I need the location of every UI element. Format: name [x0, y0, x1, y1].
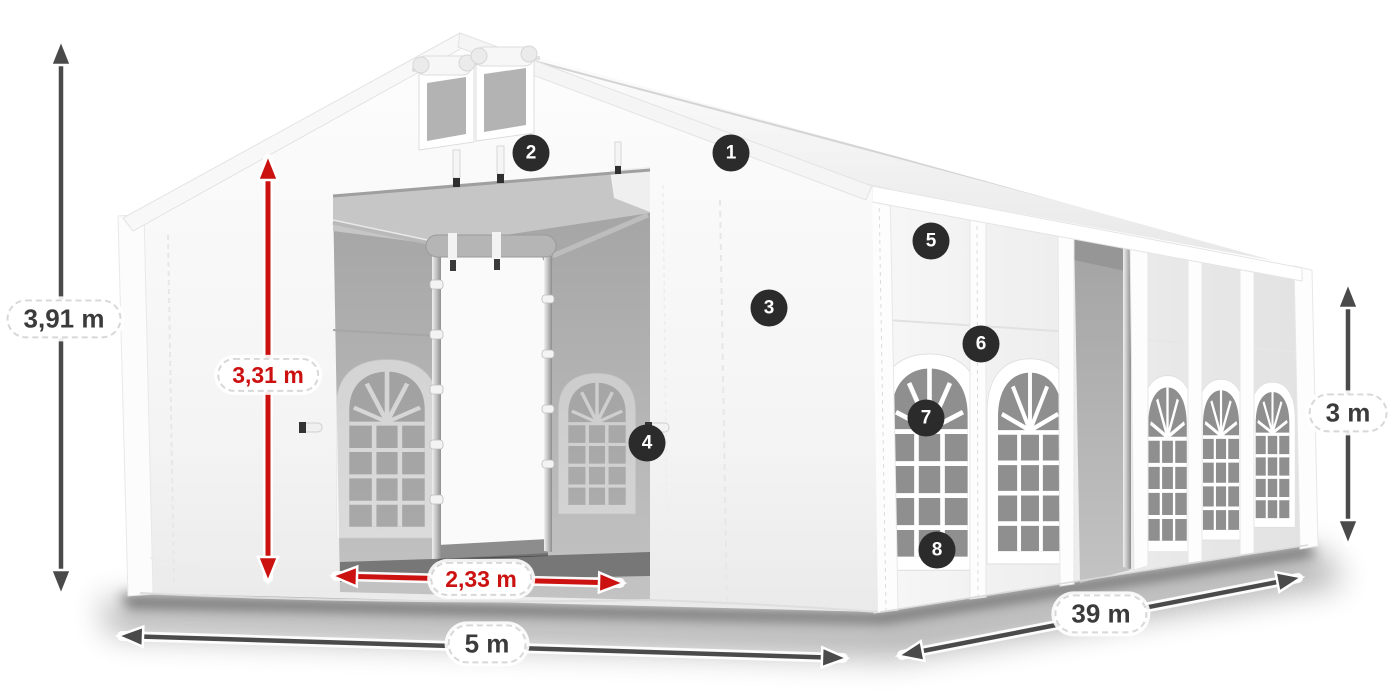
- dimension-label-door-height: 3,31 m: [217, 358, 319, 392]
- side-passage-opening: [1074, 226, 1131, 583]
- side-window-4: [1197, 379, 1245, 540]
- interior-window-right: [559, 373, 636, 513]
- callout-badge-3[interactable]: 3: [751, 290, 788, 327]
- callout-badge-6[interactable]: 6: [963, 326, 1000, 363]
- callout-badge-2[interactable]: 2: [513, 135, 550, 172]
- gable-window-right: [471, 46, 537, 141]
- dimension-label-overall-height: 3,91 m: [7, 299, 122, 338]
- dimension-label-side-length: 39 m: [1054, 594, 1147, 633]
- front-door-opening: [333, 167, 650, 600]
- callout-badge-5[interactable]: 5: [913, 223, 950, 260]
- dimension-label-door-width: 2,33 m: [430, 562, 532, 596]
- rolled-door: [426, 235, 556, 257]
- left-door-handle: [299, 422, 322, 433]
- callout-badge-4[interactable]: 4: [629, 425, 666, 462]
- tent-illustration: [0, 0, 1400, 700]
- callout-badge-8[interactable]: 8: [919, 532, 956, 569]
- side-window-3: [1142, 376, 1194, 552]
- callout-badge-1[interactable]: 1: [713, 135, 750, 172]
- interior-window-left: [336, 360, 437, 538]
- tent-dimension-diagram: 3,91 m 3,31 m 2,33 m 5 m 39 m 3 m 1 2 3 …: [0, 0, 1400, 700]
- callout-badge-7[interactable]: 7: [908, 400, 945, 437]
- dimension-label-wall-height: 3 m: [1309, 393, 1388, 432]
- dimension-label-front-width: 5 m: [448, 624, 527, 663]
- side-window-5: [1250, 382, 1295, 527]
